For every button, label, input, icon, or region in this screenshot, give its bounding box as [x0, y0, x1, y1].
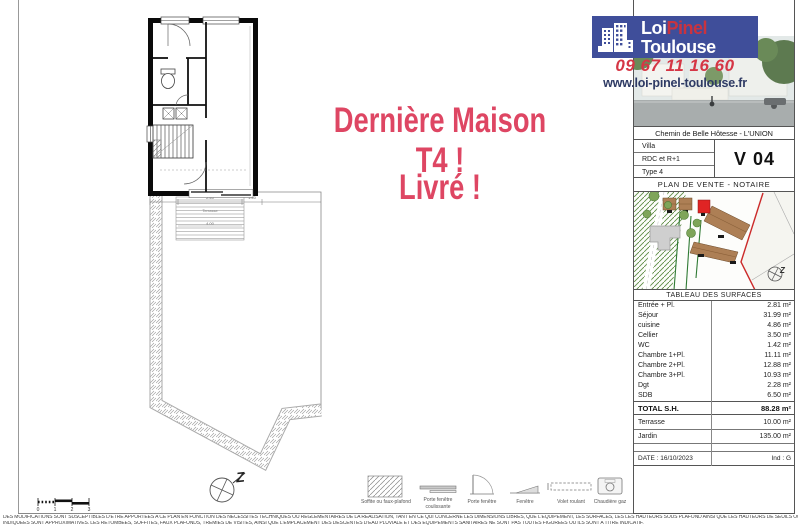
- unit-levels-row: RDC et R+1: [634, 153, 714, 166]
- legend-porte-fenetre-coulissante-icon: [420, 486, 456, 493]
- brand-name: LoiPinel Toulouse: [641, 19, 716, 56]
- total-value: 88.28 m²: [761, 402, 794, 414]
- table-row: cuisine4.86 m²: [634, 321, 794, 331]
- legend-chaudiere-gaz-icon: [598, 478, 622, 494]
- site-plan-map: Z: [634, 192, 794, 290]
- phone-number: 09 67 11 16 60: [588, 56, 762, 76]
- terrasse-row: Terrasse 10.00 m²: [634, 415, 794, 430]
- surfaces-table-title: TABLEAU DES SURFACES: [634, 290, 794, 301]
- brand-logo: LoiPinel Toulouse: [592, 16, 758, 58]
- table-row: Entrée + Pl.2.81 m²: [634, 301, 794, 311]
- terrace: [150, 197, 321, 240]
- brand-name-pinel: Pinel: [667, 18, 708, 38]
- date-row: DATE : 16/10/2023 Ind : G: [634, 452, 794, 466]
- map-north-label: Z: [780, 266, 785, 275]
- unit-code: V 04: [715, 140, 794, 178]
- building-icon: [598, 20, 636, 54]
- total-label: TOTAL S.H.: [634, 402, 679, 414]
- index-value: Ind : G: [771, 452, 794, 465]
- scale-bar: [38, 498, 89, 506]
- legend-soffite-icon: [368, 476, 402, 497]
- table-row: WC1.42 m²: [634, 341, 794, 351]
- compass-icon: [210, 473, 245, 502]
- spacer-row: [634, 444, 794, 452]
- surfaces-table: Entrée + Pl.2.81 m² Séjour31.99 m² cuisi…: [634, 301, 794, 401]
- map-highlighted-unit: [698, 200, 710, 213]
- table-row: Chambre 3+Pl.10.93 m²: [634, 371, 794, 381]
- website-link[interactable]: www.loi-pinel-toulouse.fr: [584, 76, 766, 90]
- jardin-row: Jardin 135.00 m²: [634, 430, 794, 444]
- table-row: SDB6.50 m²: [634, 391, 794, 401]
- plan-de-vente-page: Dernière Maison T4 ! Livré ! Entrée WC C…: [0, 0, 800, 529]
- table-row: Cellier3.50 m²: [634, 331, 794, 341]
- unit-type-row: Villa: [634, 140, 714, 153]
- table-row: Chambre 2+Pl.12.88 m²: [634, 361, 794, 371]
- legend-fenetre-icon: [510, 486, 540, 493]
- total-row: TOTAL S.H. 88.28 m²: [634, 401, 794, 415]
- brand-name-toulouse: Toulouse: [641, 38, 716, 56]
- table-row: Séjour31.99 m²: [634, 311, 794, 321]
- date-value: DATE : 16/10/2023: [634, 452, 693, 465]
- house-plan: [147, 17, 256, 198]
- table-row: Dgt2.28 m²: [634, 381, 794, 391]
- table-row: Chambre 1+Pl.11.11 m²: [634, 351, 794, 361]
- brand-name-loi: Loi: [641, 18, 667, 38]
- table-column-divider: [711, 301, 712, 466]
- legend-volet-roulant-icon: [548, 483, 591, 490]
- legend-porte-fenetre-icon: [470, 475, 494, 494]
- unit-info-block: Villa RDC et R+1 Type 4 V 04: [634, 140, 794, 178]
- document-title: PLAN DE VENTE - NOTAIRE: [634, 178, 794, 192]
- address-row: Chemin de Belle Hôtesse - L'UNION: [634, 126, 794, 140]
